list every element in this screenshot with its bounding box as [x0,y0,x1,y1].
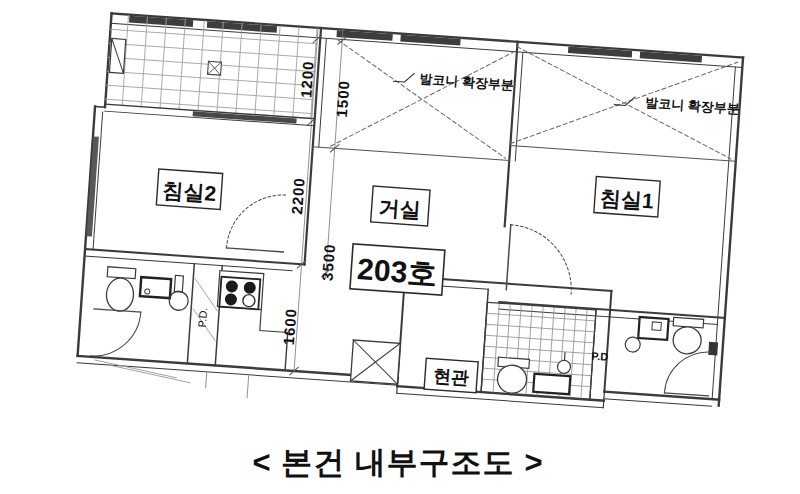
svg-text:203호: 203호 [356,252,438,291]
sink-icon [533,351,572,394]
floor-plan-svg: P.D. P.D [0,0,800,494]
svg-text:침실1: 침실1 [599,186,654,213]
bathroom-left [91,266,191,362]
svg-text:거실: 거실 [378,196,422,222]
pipe-duct-left: P.D. [191,279,219,341]
toilet-icon [671,317,703,355]
toilet-icon [105,267,136,312]
caption: < 본건 내부구조도 > [252,445,543,480]
dimension-2200: 2200 [288,177,308,215]
dimension-1600: 1600 [280,307,300,345]
scanned-floor-plan-page: P.D. P.D [0,0,800,494]
toilet-icon [496,357,529,394]
room-label-bedroom1: 침실1 [594,177,660,217]
svg-text:현관: 현관 [432,366,470,389]
pipe-duct-right-label: P.D [591,350,609,363]
kitchen [216,271,292,333]
window-bars [86,14,702,278]
door-bathroom-right [664,349,711,396]
sink-icon [140,277,171,298]
room-label-living: 거실 [371,186,430,226]
shaft-x-box [351,340,401,384]
pipe-duct-left-label: P.D. [196,307,209,328]
balcony-extension-left-label: 발코니 확장부분 [419,71,514,93]
dimension-1500: 1500 [333,79,353,117]
stove-icon [219,277,260,310]
svg-text:침실2: 침실2 [162,178,217,205]
sink-icon [625,316,669,354]
vent-icon [708,342,718,356]
room-label-entrance: 현관 [424,358,478,393]
unit-number-label: 203호 [350,244,445,295]
room-label-bedroom2: 침실2 [156,169,222,209]
door-bedroom2 [226,191,287,252]
bathroom-center [481,302,596,399]
door-bathroom-left [91,309,141,359]
dimension-1200: 1200 [297,60,317,98]
dimension-3500: 3500 [318,243,338,281]
bathroom-right [622,314,720,396]
floor-plan: P.D. P.D [76,12,744,431]
balcony-extension-right-label: 발코니 확장부분 [645,95,740,117]
